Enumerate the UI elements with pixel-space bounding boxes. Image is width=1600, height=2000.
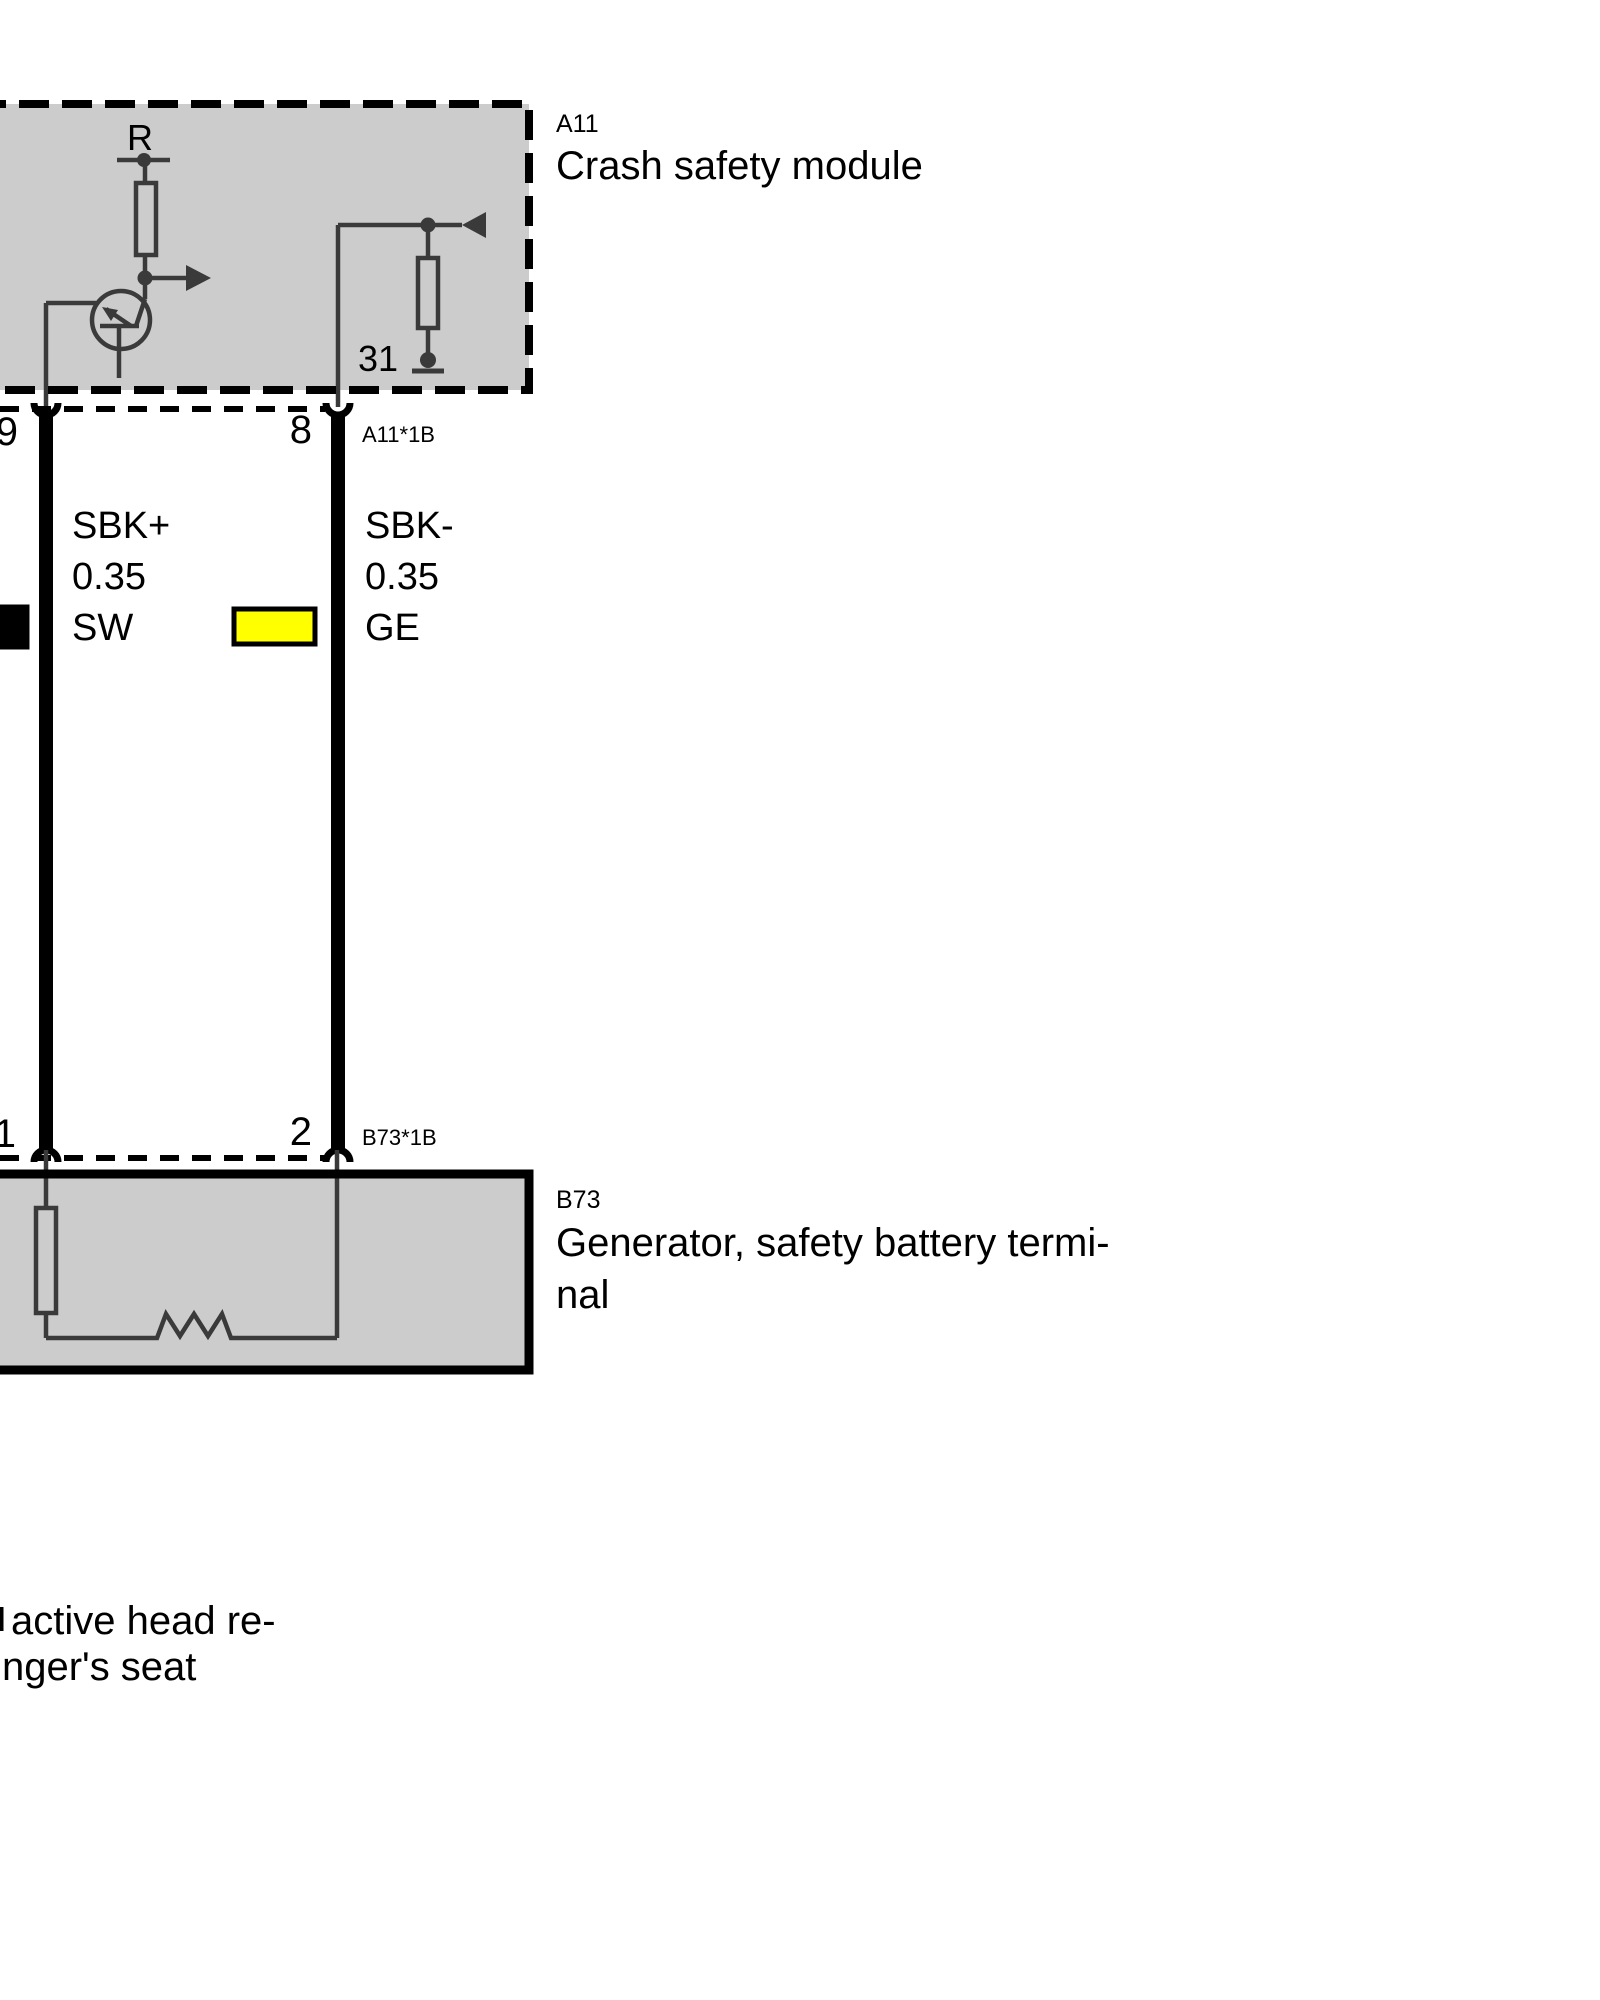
wire-right-signal: SBK- (365, 505, 454, 547)
a11-name: Crash safety module (556, 144, 923, 188)
b73-module-body (0, 1174, 529, 1370)
b73-connector-label: B73*1B (362, 1125, 437, 1150)
wire-left-color-swatch (0, 607, 27, 647)
wire-right-color-swatch (234, 609, 315, 644)
wire-right-cross-section: 0.35 (365, 556, 439, 598)
wiring-diagram-canvas: R 31 A11 Crash safety module 9 8 A11*1B … (0, 0, 1600, 2000)
b73-name-line1: Generator, safety battery termi- (556, 1221, 1110, 1265)
resistor-r-label: R (127, 117, 153, 158)
cut-glyph-fragment (0, 1607, 4, 1631)
wiring-diagram-page: R 31 A11 Crash safety module 9 8 A11*1B … (0, 0, 1600, 2000)
footnote-line1: active head re- (11, 1599, 276, 1643)
pin-8-label: 8 (290, 408, 312, 452)
wire-left-labels: SBK+ 0.35 SW (0, 505, 170, 649)
b73-code: B73 (556, 1186, 600, 1214)
footnote-text: active head re- nger's seat (0, 1599, 276, 1689)
wire-left-color-code: SW (72, 607, 133, 649)
terminal-31-label: 31 (358, 338, 398, 379)
a11-code: A11 (556, 110, 599, 138)
footnote-line2: nger's seat (2, 1645, 196, 1689)
a11-module-body (0, 104, 529, 390)
junction-dot (421, 218, 436, 233)
b73-module (0, 1150, 529, 1370)
pin-1-label: 1 (0, 1112, 16, 1156)
b73-name-line2: nal (556, 1273, 609, 1317)
pin-2-label: 2 (290, 1110, 312, 1154)
a11-module: R 31 (0, 104, 529, 407)
a11-connector-row: 9 8 A11*1B (0, 403, 435, 454)
wire-left-signal: SBK+ (72, 505, 170, 547)
wire-right-color-code: GE (365, 607, 420, 649)
a11-connector-label: A11*1B (362, 422, 435, 447)
wire-left-cross-section: 0.35 (72, 556, 146, 598)
pin-9-label: 9 (0, 410, 18, 454)
b73-connector-row: 1 2 B73*1B (0, 1110, 437, 1162)
